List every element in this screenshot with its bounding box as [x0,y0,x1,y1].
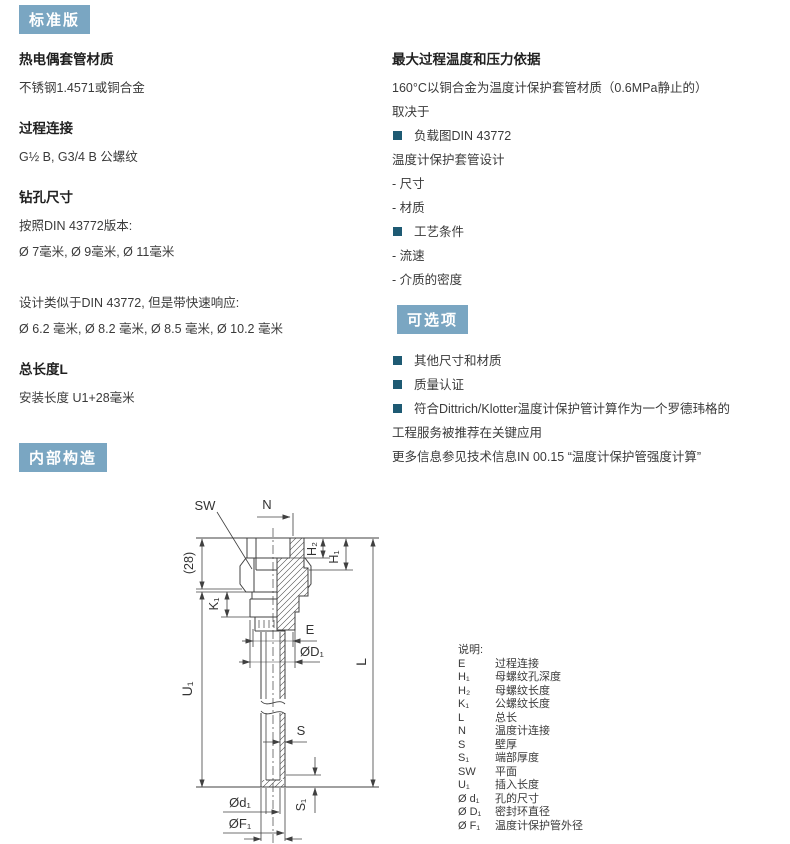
legend-desc: 母螺纹孔深度 [495,671,561,683]
heading-process-connection: 过程连接 [19,117,377,137]
legend-desc: 温度计连接 [495,725,550,737]
legend-row: Ø d₁孔的尺寸 [458,793,583,807]
text-more-info: 更多信息参见技术信息IN 00.15 “温度计保护管强度计算” [392,450,784,464]
dim-label-u1: U₁ [179,681,195,696]
bullet-load-diagram: 负载图DIN 43772 [392,129,784,143]
section-badge-options: 可选项 [397,305,468,334]
bullet-square-icon [393,131,402,140]
text-medium-density: - 介质的密度 [392,273,784,287]
legend-desc: 母螺纹长度 [495,685,550,697]
bullet-square-icon [393,380,402,389]
legend-symbol: K₁ [458,698,495,712]
legend-row: U₁插入长度 [458,779,583,793]
heading-total-length: 总长度L [19,358,377,378]
legend-row: E过程连接 [458,658,583,672]
text-thermowell-design: 温度计保护套管设计 [392,153,784,167]
legend-symbol: E [458,658,495,672]
legend-row: H₁母螺纹孔深度 [458,671,583,685]
bullet-square-icon [393,227,402,236]
legend-symbol: SW [458,766,495,780]
left-column: 热电偶套管材质 不锈钢1.4571或铜合金 过程连接 G½ B, G3/4 B … [19,48,377,417]
bullet-process-conditions-label: 工艺条件 [414,225,464,239]
legend-desc: 温度计保护管外径 [495,820,583,832]
text-total-length: 安装长度 U1+28毫米 [19,391,377,405]
legend-desc: 过程连接 [495,658,539,670]
dim-label-d-small: Ød₁ [229,795,251,810]
heading-max-temp-pressure: 最大过程温度和压力依据 [392,48,784,68]
legend-row: N温度计连接 [458,725,583,739]
bullet-calculation-service-label: 符合Dittrich/Klotter温度计保护管计算作为一个罗德玮格的 [414,402,730,416]
dim-label-h1: H₁ [327,550,341,563]
dim-label-n: N [262,497,271,512]
legend-panel: 说明: E过程连接 H₁母螺纹孔深度 H₂母螺纹长度 K₁公螺纹长度 L总长 N… [458,644,583,833]
legend-symbol: H₂ [458,685,495,699]
dim-label-s: S [297,723,306,738]
legend-desc: 平面 [495,766,517,778]
text-design-dimension: - 尺寸 [392,177,784,191]
dim-label-l: L [353,658,369,666]
bullet-other-sizes-label: 其他尺寸和材质 [414,354,502,368]
legend-desc: 壁厚 [495,739,517,751]
text-depends-on: 取决于 [392,105,784,119]
text-process-connection: G½ B, G3/4 B 公螺纹 [19,150,377,164]
right-column: 最大过程温度和压力依据 160°C以铜合金为温度计保护套管材质（0.6MPa静止… [392,48,784,474]
legend-row: H₂母螺纹长度 [458,685,583,699]
legend-symbol: S [458,739,495,753]
legend-row: L总长 [458,712,583,726]
dim-label-e: E [306,622,315,637]
heading-sheath-material: 热电偶套管材质 [19,48,377,68]
text-bore-sizes: Ø 7毫米, Ø 9毫米, Ø 11毫米 [19,245,377,259]
bullet-quality-cert-label: 质量认证 [414,378,464,392]
legend-row: S₁端部厚度 [458,752,583,766]
dim-label-28: (28) [182,552,196,574]
text-design-material: - 材质 [392,201,784,215]
legend-row: Ø F₁温度计保护管外径 [458,820,583,834]
dim-label-d-big: ØD₁ [300,644,325,659]
legend-title: 说明: [458,644,583,658]
legend-desc: 插入长度 [495,779,539,791]
text-flow-rate: - 流速 [392,249,784,263]
section-badge-standard: 标准版 [19,5,90,34]
legend-row: S壁厚 [458,739,583,753]
dim-label-sw: SW [195,498,217,513]
legend-row: K₁公螺纹长度 [458,698,583,712]
legend-symbol: N [458,725,495,739]
bullet-process-conditions: 工艺条件 [392,225,784,239]
tip-section [262,780,284,787]
legend-symbol: Ø d₁ [458,793,495,807]
dim-label-f1: ØF₁ [229,816,252,831]
dim-label-k1: K₁ [206,597,221,611]
legend-symbol: Ø F₁ [458,820,495,834]
legend-symbol: S₁ [458,752,495,766]
legend-row: Ø D₁密封环直径 [458,806,583,820]
legend-symbol: L [458,712,495,726]
text-calculation-service-line2: 工程服务被推荐在关键应用 [392,426,784,440]
bullet-square-icon [393,356,402,365]
legend-desc: 孔的尺寸 [495,793,539,805]
bullet-quality-cert: 质量认证 [392,378,784,392]
legend-desc: 端部厚度 [495,752,539,764]
page-root: { "colors": {"badge_bg":"#7aa6c2","bulle… [0,0,790,844]
text-max-temp: 160°C以铜合金为温度计保护套管材质（0.6MPa静止的） [392,81,784,95]
thermowell-diagram: SW N (28) K₁ U₁ L H₂ H₁ E ØD₁ S S₁ Ød₁ Ø… [160,480,470,844]
bullet-load-diagram-label: 负载图DIN 43772 [414,129,511,143]
bullet-calculation-service: 符合Dittrich/Klotter温度计保护管计算作为一个罗德玮格的 [392,402,784,416]
legend-desc: 密封环直径 [495,806,550,818]
legend-symbol: U₁ [458,779,495,793]
text-bore-fast-sizes: Ø 6.2 毫米, Ø 8.2 毫米, Ø 8.5 毫米, Ø 10.2 毫米 [19,322,377,336]
thermowell-geometry [196,528,379,843]
legend-desc: 公螺纹长度 [495,698,550,710]
text-bore-fast: 设计类似于DIN 43772, 但是带快速响应: [19,296,377,310]
legend-row: SW平面 [458,766,583,780]
bullet-other-sizes: 其他尺寸和材质 [392,354,784,368]
section-badge-internal: 内部构造 [19,443,107,472]
legend-symbol: H₁ [458,671,495,685]
legend-desc: 总长 [495,712,517,724]
legend-symbol: Ø D₁ [458,806,495,820]
text-sheath-material: 不锈钢1.4571或铜合金 [19,81,377,95]
bullet-square-icon [393,404,402,413]
text-bore-standard: 按照DIN 43772版本: [19,219,377,233]
flange-section [277,538,308,630]
heading-bore-size: 钻孔尺寸 [19,186,377,206]
dim-label-h2: H₂ [305,542,319,556]
dim-label-s1: S₁ [294,799,308,812]
